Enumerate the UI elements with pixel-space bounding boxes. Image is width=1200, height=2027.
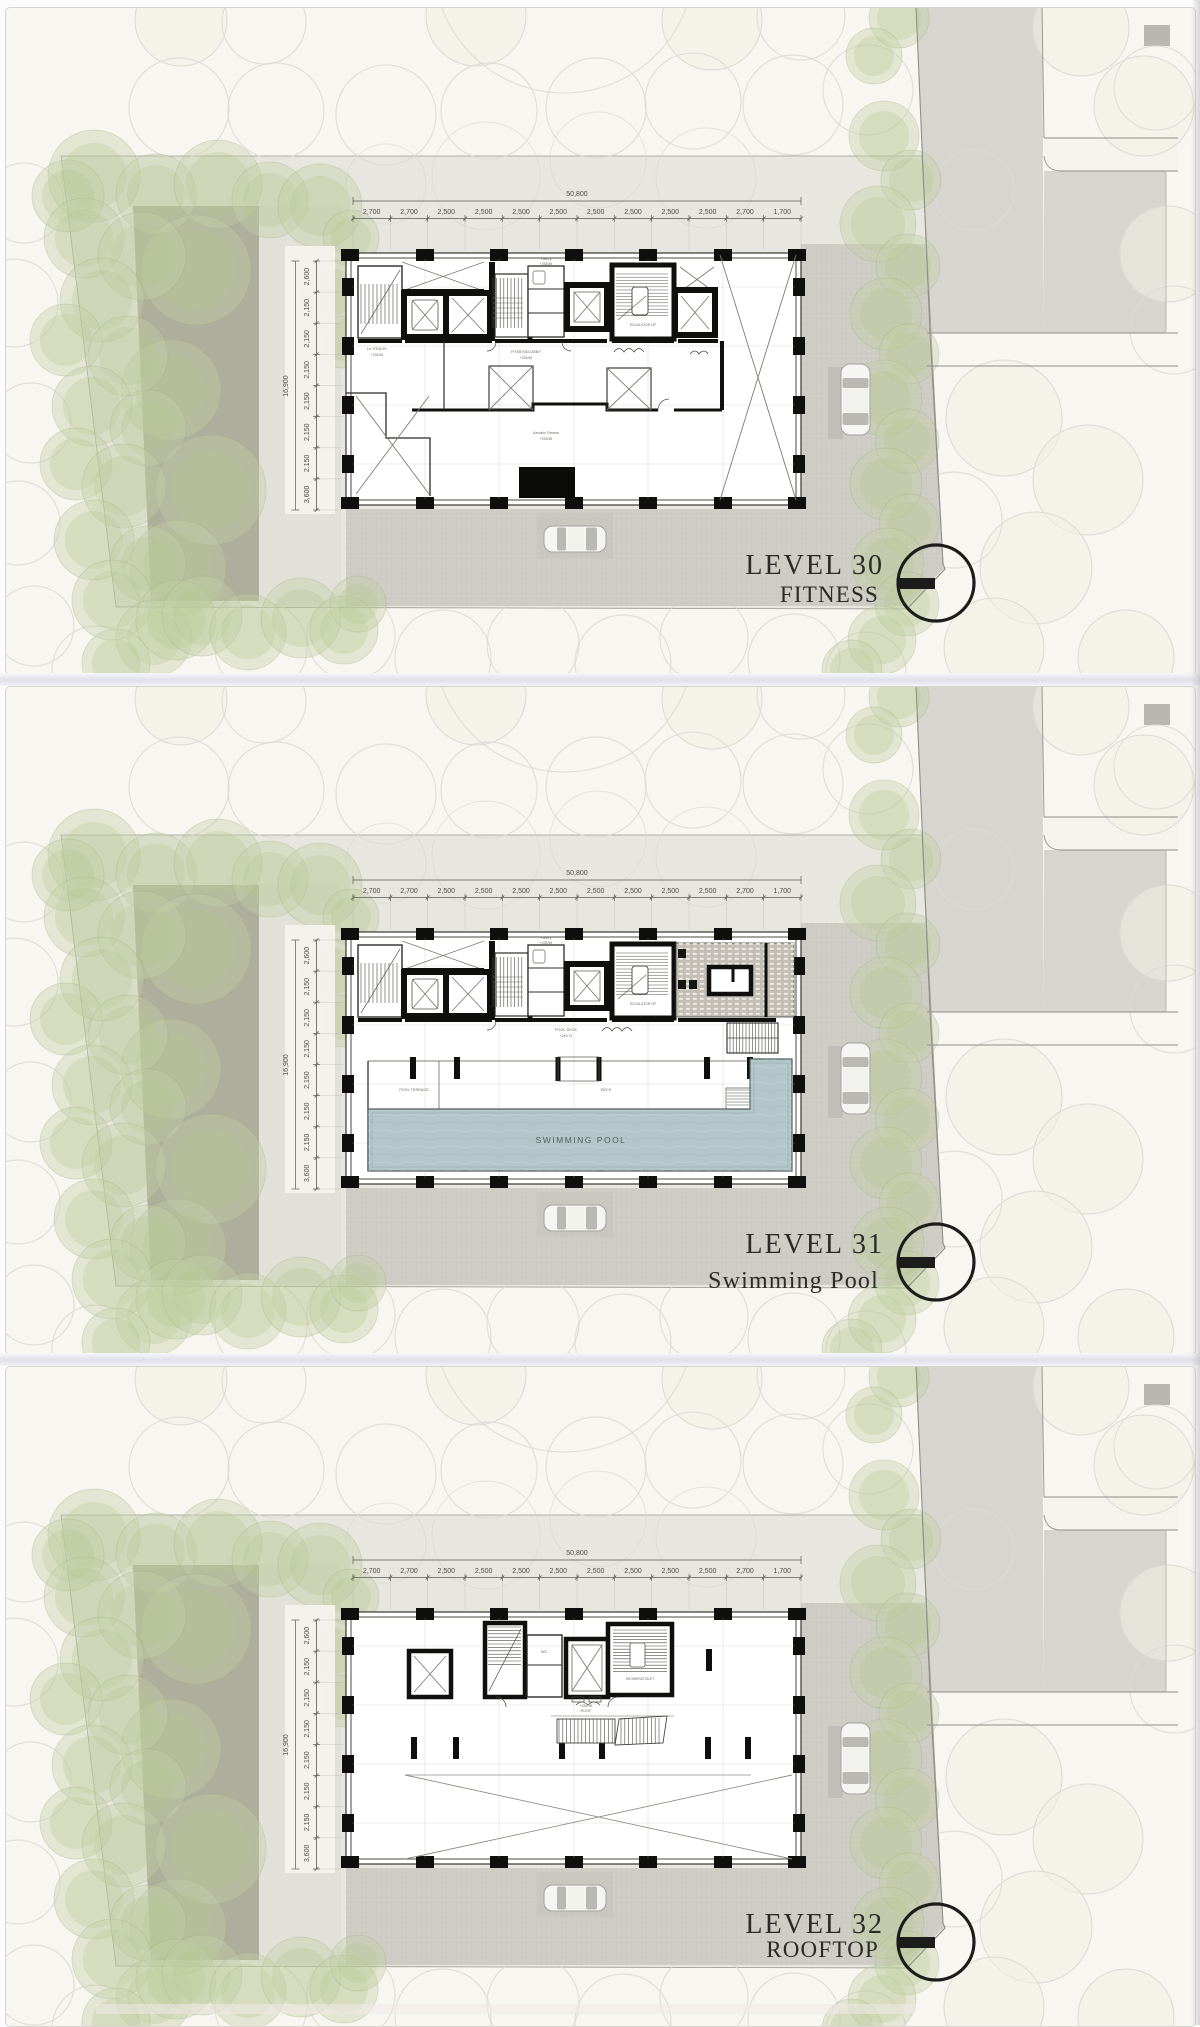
svg-text:16,900: 16,900 [283,375,290,397]
svg-text:2,500: 2,500 [550,209,568,216]
svg-text:2,150: 2,150 [304,361,311,379]
svg-text:SHOWER&TOILET: SHOWER&TOILET [626,1677,655,1681]
svg-text:2,500: 2,500 [512,209,530,216]
svg-text:2,700: 2,700 [400,209,418,216]
svg-text:ESCALATOR UP: ESCALATOR UP [630,1002,657,1006]
svg-text:Pantry: Pantry [541,257,552,261]
svg-text:LEVEL 31: LEVEL 31 [745,1229,884,1260]
svg-text:2,500: 2,500 [662,209,680,216]
svg-text:LEVEL 32: LEVEL 32 [745,1909,884,1940]
svg-text:Pantry: Pantry [541,936,552,940]
svg-text:2,500: 2,500 [699,209,717,216]
svg-text:2,150: 2,150 [304,330,311,348]
svg-text:POOL TERRACE: POOL TERRACE [399,1088,429,1092]
svg-text:+235.55: +235.55 [540,941,552,945]
svg-text:DECK: DECK [601,1088,612,1092]
svg-text:2,500: 2,500 [438,209,456,216]
svg-text:2,500: 2,500 [587,209,605,216]
svg-text:+235.55: +235.55 [371,353,383,357]
svg-text:ROOFTOP: ROOFTOP [766,1937,879,1962]
svg-text:2,150: 2,150 [304,454,311,472]
svg-text:ESCALATOR UP: ESCALATOR UP [630,323,657,327]
svg-text:2,150: 2,150 [304,423,311,441]
svg-text:Le STUDIO: Le STUDIO [367,347,387,351]
svg-text:1,700: 1,700 [774,209,792,216]
svg-text:ROOF: ROOF [581,1709,593,1713]
svg-text:Swimming Pool: Swimming Pool [708,1268,879,1294]
svg-text:+235.55: +235.55 [540,437,552,441]
svg-text:POOL DECK: POOL DECK [555,1028,577,1032]
svg-text:SWIMMING POOL: SWIMMING POOL [536,1135,627,1145]
svg-text:2,600: 2,600 [304,268,311,286]
svg-text:2,700: 2,700 [363,209,381,216]
svg-text:FITNESS/LOBBY: FITNESS/LOBBY [511,350,541,354]
svg-text:WC: WC [541,1650,548,1654]
svg-text:50,800: 50,800 [566,191,588,198]
svg-text:+244.15: +244.15 [580,1704,592,1708]
svg-text:+240.70: +240.70 [560,1034,572,1038]
svg-text:Aerobic Fitness: Aerobic Fitness [533,431,559,435]
svg-text:3,600: 3,600 [304,486,311,504]
svg-text:2,150: 2,150 [304,392,311,410]
svg-text:2,500: 2,500 [475,209,493,216]
svg-text:+235.55: +235.55 [540,262,552,266]
svg-text:2,150: 2,150 [304,299,311,317]
svg-text:+235.55: +235.55 [520,356,532,360]
svg-text:LEVEL 30: LEVEL 30 [745,550,884,581]
svg-text:2,500: 2,500 [624,209,642,216]
svg-text:2,700: 2,700 [736,209,754,216]
svg-text:FITNESS: FITNESS [780,582,879,607]
